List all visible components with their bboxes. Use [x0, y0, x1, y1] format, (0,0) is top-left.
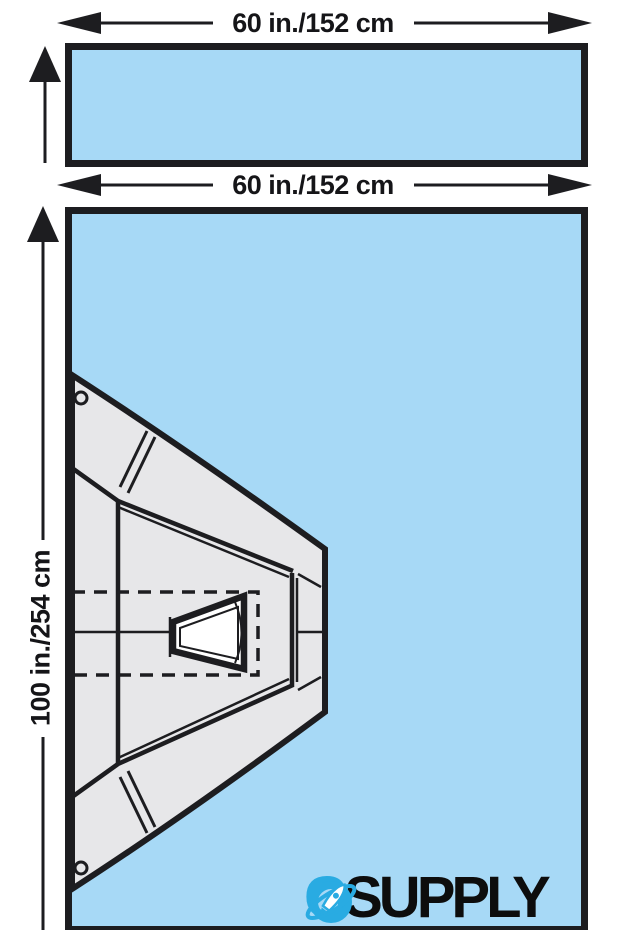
arrowhead-right-icon: [548, 174, 592, 196]
logo-supply-letters: SUPPLY: [344, 868, 547, 928]
gosupply-logo: G SUPPLY: [304, 868, 547, 928]
top-drape-rect: [69, 47, 585, 164]
arrowhead-up-icon: [29, 46, 61, 82]
grommet-hole-top-icon: [75, 392, 87, 404]
grommet-hole-bottom-icon: [75, 862, 87, 874]
diagram-canvas: [0, 0, 618, 930]
top-width-dimension-label: 60 in./152 cm: [232, 10, 394, 37]
arrowhead-left-icon: [57, 174, 101, 196]
top-height-arrow: [29, 46, 61, 163]
arrowhead-left-icon: [57, 12, 101, 34]
arrowhead-up-icon: [27, 206, 59, 242]
main-width-dimension-label: 60 in./152 cm: [232, 172, 394, 199]
main-height-dimension-label: 100 in./254 cm: [28, 550, 55, 726]
drape-diagram: 60 in./152 cm 60 in./152 cm 100 in./254 …: [0, 0, 618, 930]
arrowhead-right-icon: [548, 12, 592, 34]
rocket-orbit-o-icon: [304, 868, 358, 930]
